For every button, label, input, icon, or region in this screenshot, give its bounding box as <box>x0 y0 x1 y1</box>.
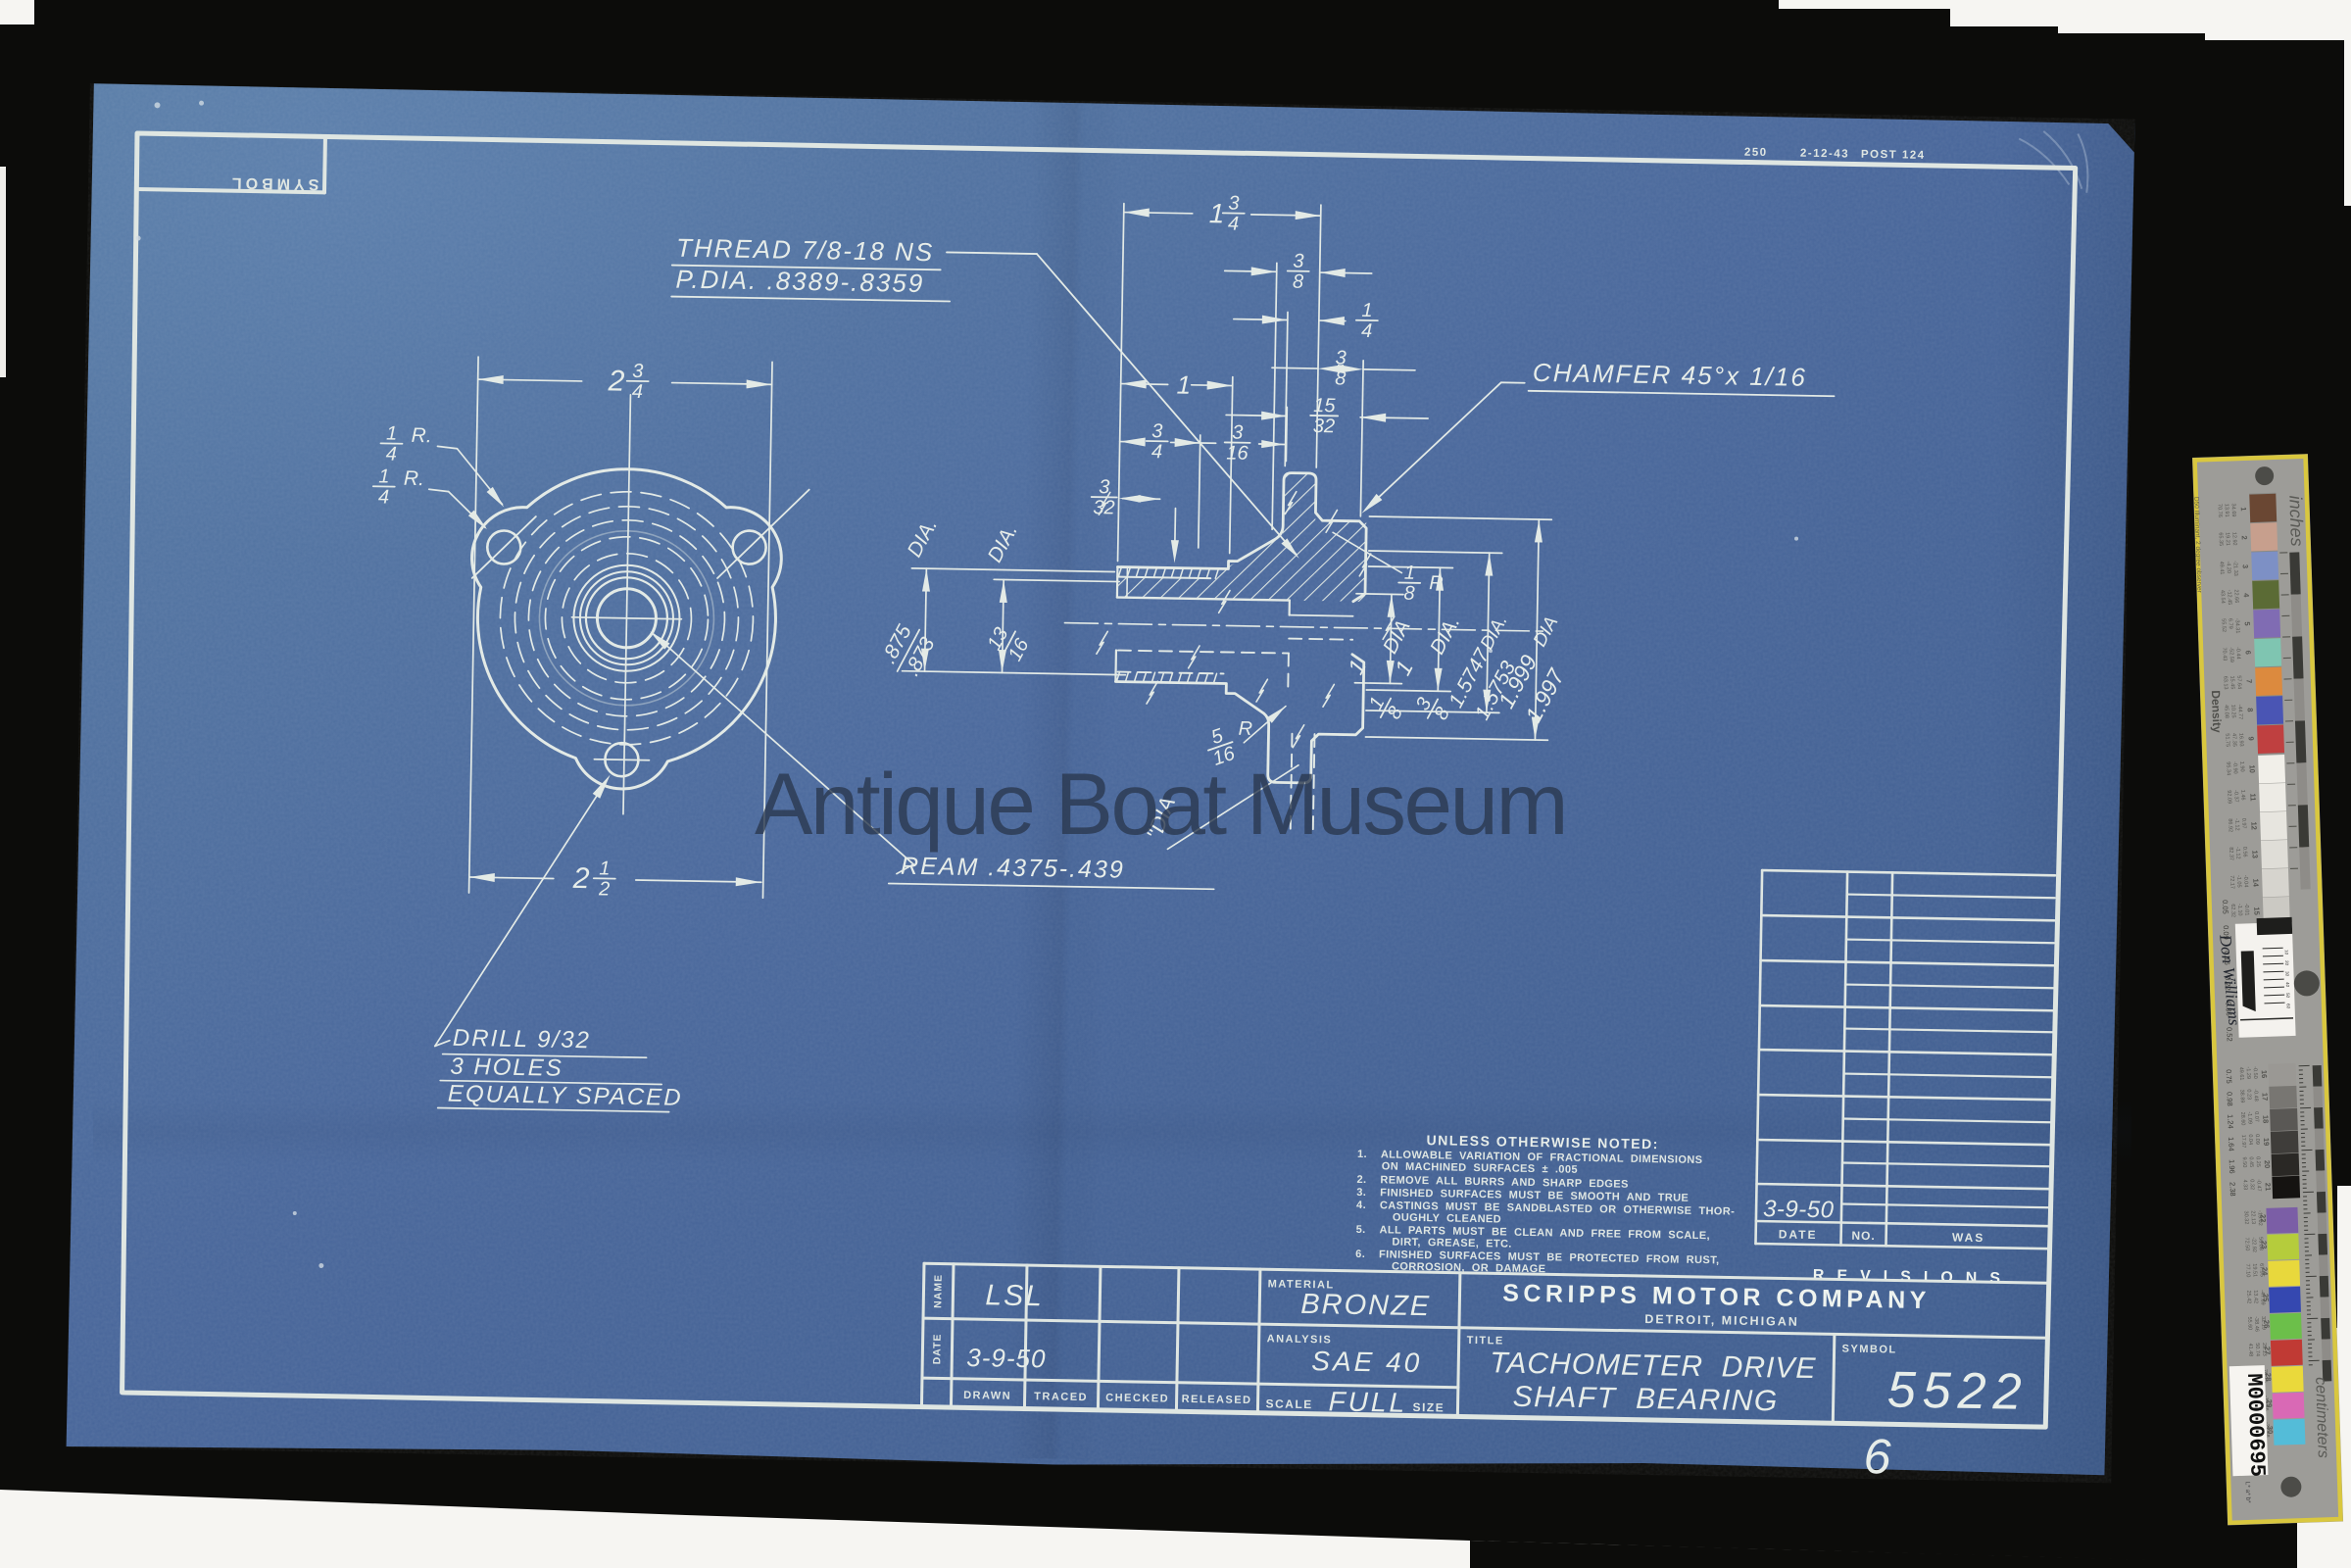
svg-text:1.46: 1.46 <box>2239 790 2245 801</box>
svg-text:51.75: 51.75 <box>2224 733 2229 747</box>
svg-text:-1.12: -1.12 <box>2233 818 2239 831</box>
svg-text:LSL: LSL <box>985 1279 1044 1312</box>
svg-text:0.56: 0.56 <box>2241 847 2247 857</box>
svg-text:1.96: 1.96 <box>2228 1159 2236 1174</box>
svg-text:0.05: 0.05 <box>2221 900 2229 914</box>
svg-text:82.37: 82.37 <box>2228 847 2233 860</box>
svg-text:49.61: 49.61 <box>2238 1067 2244 1081</box>
svg-text:32: 32 <box>1313 416 1336 437</box>
svg-text:8: 8 <box>1335 367 1347 389</box>
svg-text:65.35: 65.35 <box>2218 532 2224 546</box>
svg-text:3-9-50: 3-9-50 <box>1763 1196 1835 1223</box>
svg-text:-38.46: -38.46 <box>2253 1316 2260 1332</box>
svg-text:3-9-50: 3-9-50 <box>966 1343 1047 1373</box>
svg-text:-1.10: -1.10 <box>2236 904 2242 916</box>
svg-text:8: 8 <box>1403 583 1415 605</box>
svg-text:-0.44: -0.44 <box>2234 647 2240 660</box>
svg-text:-34.31: -34.31 <box>2233 618 2240 634</box>
svg-text:SYMBOL: SYMBOL <box>228 174 319 193</box>
svg-text:SCALE: SCALE <box>1265 1396 1312 1411</box>
svg-text:-1.05: -1.05 <box>2235 875 2241 888</box>
svg-text:22: 22 <box>2259 1214 2268 1223</box>
svg-text:16: 16 <box>2260 1070 2269 1079</box>
svg-text:13.42: 13.42 <box>2252 1290 2258 1303</box>
svg-text:-1.09: -1.09 <box>2246 1111 2252 1124</box>
svg-text:13: 13 <box>2250 850 2259 858</box>
svg-text:-0.04: -0.04 <box>2242 875 2248 888</box>
svg-text:26: 26 <box>2262 1320 2271 1329</box>
svg-text:16: 16 <box>1226 442 1249 464</box>
svg-text:0.32: 0.32 <box>2248 1179 2254 1190</box>
svg-text:-0.90: -0.90 <box>2231 761 2237 774</box>
svg-text:1: 1 <box>1361 300 1373 321</box>
svg-text:16.93: 16.93 <box>2237 733 2243 747</box>
svg-text:1: 1 <box>2239 507 2248 511</box>
svg-text:55.60: 55.60 <box>2246 1316 2252 1330</box>
svg-text:12.92: 12.92 <box>2231 532 2237 546</box>
svg-text:R: R <box>1429 572 1444 594</box>
svg-text:77.10: 77.10 <box>2244 1263 2250 1277</box>
svg-text:-1.12: -1.12 <box>2234 847 2240 859</box>
svg-text:NAME: NAME <box>932 1274 945 1308</box>
svg-text:REVISIONS: REVISIONS <box>1813 1267 2013 1288</box>
svg-text:SHAFT BEARING: SHAFT BEARING <box>1512 1381 1779 1418</box>
svg-text:Antique Boat Museum: Antique Boat Museum <box>755 755 1566 853</box>
svg-text:57.64: 57.64 <box>2235 675 2241 689</box>
svg-text:15.45: 15.45 <box>2229 675 2234 689</box>
svg-text:6.79: 6.79 <box>2227 618 2232 629</box>
svg-text:CHAMFER 45°x 1/16: CHAMFER 45°x 1/16 <box>1533 358 1807 392</box>
svg-text:BRONZE: BRONZE <box>1300 1289 1431 1322</box>
svg-text:3: 3 <box>632 361 644 382</box>
svg-text:21: 21 <box>2264 1183 2273 1192</box>
svg-text:4: 4 <box>632 381 644 403</box>
svg-text:3 HOLES: 3 HOLES <box>450 1053 563 1082</box>
svg-text:3: 3 <box>1335 347 1347 368</box>
svg-text:95.34: 95.34 <box>2225 761 2230 775</box>
svg-text:3: 3 <box>1228 192 1240 214</box>
svg-text:45.08: 45.08 <box>2223 705 2229 718</box>
svg-text:CHECKED: CHECKED <box>1105 1392 1169 1404</box>
svg-text:30: 30 <box>2284 971 2289 977</box>
svg-text:34.69: 34.69 <box>2230 504 2236 517</box>
svg-text:0.25: 0.25 <box>2255 1156 2261 1167</box>
svg-text:10: 10 <box>2284 950 2289 955</box>
svg-text:-12.45: -12.45 <box>2226 590 2232 606</box>
svg-text:23: 23 <box>2260 1241 2269 1249</box>
svg-text:R.: R. <box>411 424 431 447</box>
svg-text:12: 12 <box>2249 821 2258 830</box>
svg-text:TITLE: TITLE <box>1467 1335 1504 1347</box>
svg-text:7: 7 <box>2245 679 2254 683</box>
svg-text:28.60: 28.60 <box>2239 1112 2245 1126</box>
svg-text:17.97: 17.97 <box>2240 1135 2246 1149</box>
svg-text:SYMBOL: SYMBOL <box>1842 1344 1897 1356</box>
svg-text:-1.29: -1.29 <box>2245 1066 2251 1079</box>
svg-text:1: 1 <box>599 857 611 879</box>
svg-text:2: 2 <box>2240 535 2249 539</box>
svg-text:70.76: 70.76 <box>2217 504 2223 517</box>
svg-text:8: 8 <box>2245 708 2254 711</box>
svg-text:THREAD 7/8-18 NS: THREAD 7/8-18 NS <box>676 233 935 268</box>
svg-text:1.90: 1.90 <box>2238 761 2244 772</box>
svg-text:25.42: 25.42 <box>2245 1290 2251 1303</box>
svg-text:49.41: 49.41 <box>2219 562 2225 575</box>
svg-text:40: 40 <box>2285 982 2290 988</box>
svg-text:3: 3 <box>2241 564 2250 568</box>
svg-text:10: 10 <box>2247 764 2256 773</box>
svg-text:ANALYSIS: ANALYSIS <box>1267 1333 1333 1346</box>
svg-text:L* a* b*: L* a* b* <box>2244 1482 2252 1504</box>
svg-text:13.91: 13.91 <box>2224 504 2229 517</box>
svg-text:1.24: 1.24 <box>2226 1114 2234 1129</box>
svg-text:17: 17 <box>2261 1093 2270 1102</box>
svg-text:TACHOMETER DRIVE: TACHOMETER DRIVE <box>1490 1347 1817 1385</box>
svg-text:-0.50: -0.50 <box>2252 1066 2258 1079</box>
svg-text:-0.37: -0.37 <box>2232 790 2238 803</box>
svg-text:4.33: 4.33 <box>2241 1180 2247 1191</box>
svg-text:2: 2 <box>572 862 591 895</box>
svg-text:9.50: 9.50 <box>2241 1157 2247 1168</box>
svg-text:63.13: 63.13 <box>2222 676 2228 690</box>
svg-text:14: 14 <box>2251 878 2260 887</box>
svg-text:FULL: FULL <box>1328 1386 1407 1417</box>
svg-text:DRILL 9/32: DRILL 9/32 <box>453 1025 591 1053</box>
svg-text:20: 20 <box>2284 960 2289 966</box>
svg-text:-44.77: -44.77 <box>2236 705 2243 720</box>
svg-text:9: 9 <box>2246 736 2255 740</box>
svg-text:6: 6 <box>1863 1429 1891 1484</box>
svg-text:0.75: 0.75 <box>2225 1069 2233 1084</box>
svg-text:EQUALLY SPACED: EQUALLY SPACED <box>448 1081 683 1111</box>
svg-text:18: 18 <box>2261 1115 2270 1124</box>
svg-text:4: 4 <box>386 443 398 465</box>
svg-text:inches: inches <box>2285 495 2307 547</box>
svg-text:50: 50 <box>2285 993 2290 999</box>
svg-text:centimeters: centimeters <box>2312 1377 2331 1458</box>
svg-text:WAS: WAS <box>1952 1230 1985 1245</box>
svg-text:15: 15 <box>1313 395 1337 416</box>
svg-text:SAE 40: SAE 40 <box>1311 1346 1422 1378</box>
svg-text:5522: 5522 <box>1886 1361 2029 1420</box>
svg-text:-0.01: -0.01 <box>2243 904 2249 916</box>
svg-text:50.74: 50.74 <box>2254 1343 2260 1356</box>
svg-text:TRACED: TRACED <box>1034 1391 1088 1403</box>
svg-text:0.04: 0.04 <box>2247 1134 2253 1145</box>
svg-text:-21.33: -21.33 <box>2232 561 2239 576</box>
svg-text:-0.48: -0.48 <box>2252 1089 2258 1102</box>
svg-text:3: 3 <box>1232 422 1244 444</box>
svg-text:SIZE: SIZE <box>1412 1400 1445 1415</box>
svg-text:Density: Density <box>2209 690 2224 733</box>
svg-text:NO.: NO. <box>1851 1229 1876 1243</box>
svg-text:5: 5 <box>2243 621 2252 625</box>
svg-text:4: 4 <box>1151 441 1163 463</box>
svg-text:1: 1 <box>386 422 398 444</box>
svg-text:0.98: 0.98 <box>2225 1092 2233 1106</box>
svg-text:11: 11 <box>2248 793 2257 801</box>
svg-text:72.17: 72.17 <box>2229 875 2234 889</box>
svg-text:70.43: 70.43 <box>2221 647 2227 661</box>
svg-text:43.54: 43.54 <box>2219 590 2225 604</box>
svg-text:30.32: 30.32 <box>2243 1211 2249 1225</box>
svg-text:72.50: 72.50 <box>2243 1238 2249 1251</box>
svg-text:M0000695: M0000695 <box>2241 1373 2269 1477</box>
svg-text:55.52: 55.52 <box>2220 618 2226 632</box>
svg-text:38.89: 38.89 <box>2238 1090 2244 1103</box>
svg-text:1: 1 <box>378 465 390 487</box>
svg-text:27: 27 <box>2263 1347 2272 1355</box>
svg-text:2: 2 <box>607 365 625 397</box>
svg-text:DATE: DATE <box>1779 1227 1818 1242</box>
svg-text:-52.59: -52.59 <box>2228 647 2234 662</box>
svg-text:2.38: 2.38 <box>2229 1182 2237 1197</box>
svg-text:19.51: 19.51 <box>2251 1263 2257 1277</box>
svg-text:DRAWN: DRAWN <box>963 1390 1011 1402</box>
svg-text:POST 124: POST 124 <box>1861 149 1926 162</box>
svg-text:41.48: 41.48 <box>2247 1343 2253 1356</box>
svg-text:0.52: 0.52 <box>2225 1027 2233 1042</box>
svg-text:OUGHLY CLEANED: OUGHLY CLEANED <box>1393 1212 1501 1226</box>
svg-text:20: 20 <box>2263 1160 2272 1169</box>
svg-text:-0.47: -0.47 <box>2255 1179 2261 1192</box>
svg-text:60: 60 <box>2286 1004 2291 1009</box>
svg-text:15: 15 <box>2252 906 2261 915</box>
svg-text:24: 24 <box>2260 1267 2269 1276</box>
svg-text:22.13: 22.13 <box>2250 1210 2256 1224</box>
svg-text:19.21: 19.21 <box>2225 532 2230 546</box>
svg-text:92.09: 92.09 <box>2226 790 2231 804</box>
svg-text:-22.92: -22.92 <box>2250 1237 2257 1252</box>
svg-text:DETROIT, MICHIGAN: DETROIT, MICHIGAN <box>1644 1312 1799 1329</box>
svg-text:1: 1 <box>1404 563 1416 584</box>
svg-text:0.45: 0.45 <box>2248 1156 2254 1167</box>
svg-text:2: 2 <box>598 878 611 900</box>
svg-text:DIRT, GREASE, ETC.: DIRT, GREASE, ETC. <box>1392 1237 1512 1250</box>
svg-text:0.97: 0.97 <box>2240 818 2246 829</box>
svg-text:1.64: 1.64 <box>2227 1137 2235 1151</box>
svg-text:R.: R. <box>404 467 424 490</box>
svg-text:4: 4 <box>1228 213 1240 234</box>
svg-text:6: 6 <box>2244 651 2253 655</box>
svg-text:22.66: 22.66 <box>2232 589 2238 603</box>
svg-text:RELEASED: RELEASED <box>1182 1394 1252 1406</box>
svg-text:4: 4 <box>378 486 390 508</box>
svg-text:3: 3 <box>1151 420 1163 442</box>
svg-text:8: 8 <box>1293 271 1304 293</box>
svg-text:47.35: 47.35 <box>2230 733 2236 747</box>
svg-text:DATE: DATE <box>931 1333 944 1364</box>
svg-text:19: 19 <box>2262 1138 2271 1147</box>
svg-text:-4.20: -4.20 <box>2226 561 2231 573</box>
svg-text:25: 25 <box>2261 1294 2270 1302</box>
svg-text:REAM .4375-.439: REAM .4375-.439 <box>901 853 1125 884</box>
svg-text:250: 250 <box>1744 147 1768 159</box>
svg-text:10.25: 10.25 <box>2229 705 2235 718</box>
svg-text:3: 3 <box>1293 251 1304 272</box>
svg-text:2-12-43: 2-12-43 <box>1800 148 1849 161</box>
svg-text:1: 1 <box>1176 370 1191 400</box>
svg-text:0.23: 0.23 <box>2245 1089 2251 1100</box>
svg-text:4: 4 <box>1361 320 1373 342</box>
svg-text:0.07: 0.07 <box>2253 1111 2259 1122</box>
svg-text:0.09: 0.09 <box>2254 1134 2260 1145</box>
svg-text:86.92: 86.92 <box>2227 818 2232 832</box>
